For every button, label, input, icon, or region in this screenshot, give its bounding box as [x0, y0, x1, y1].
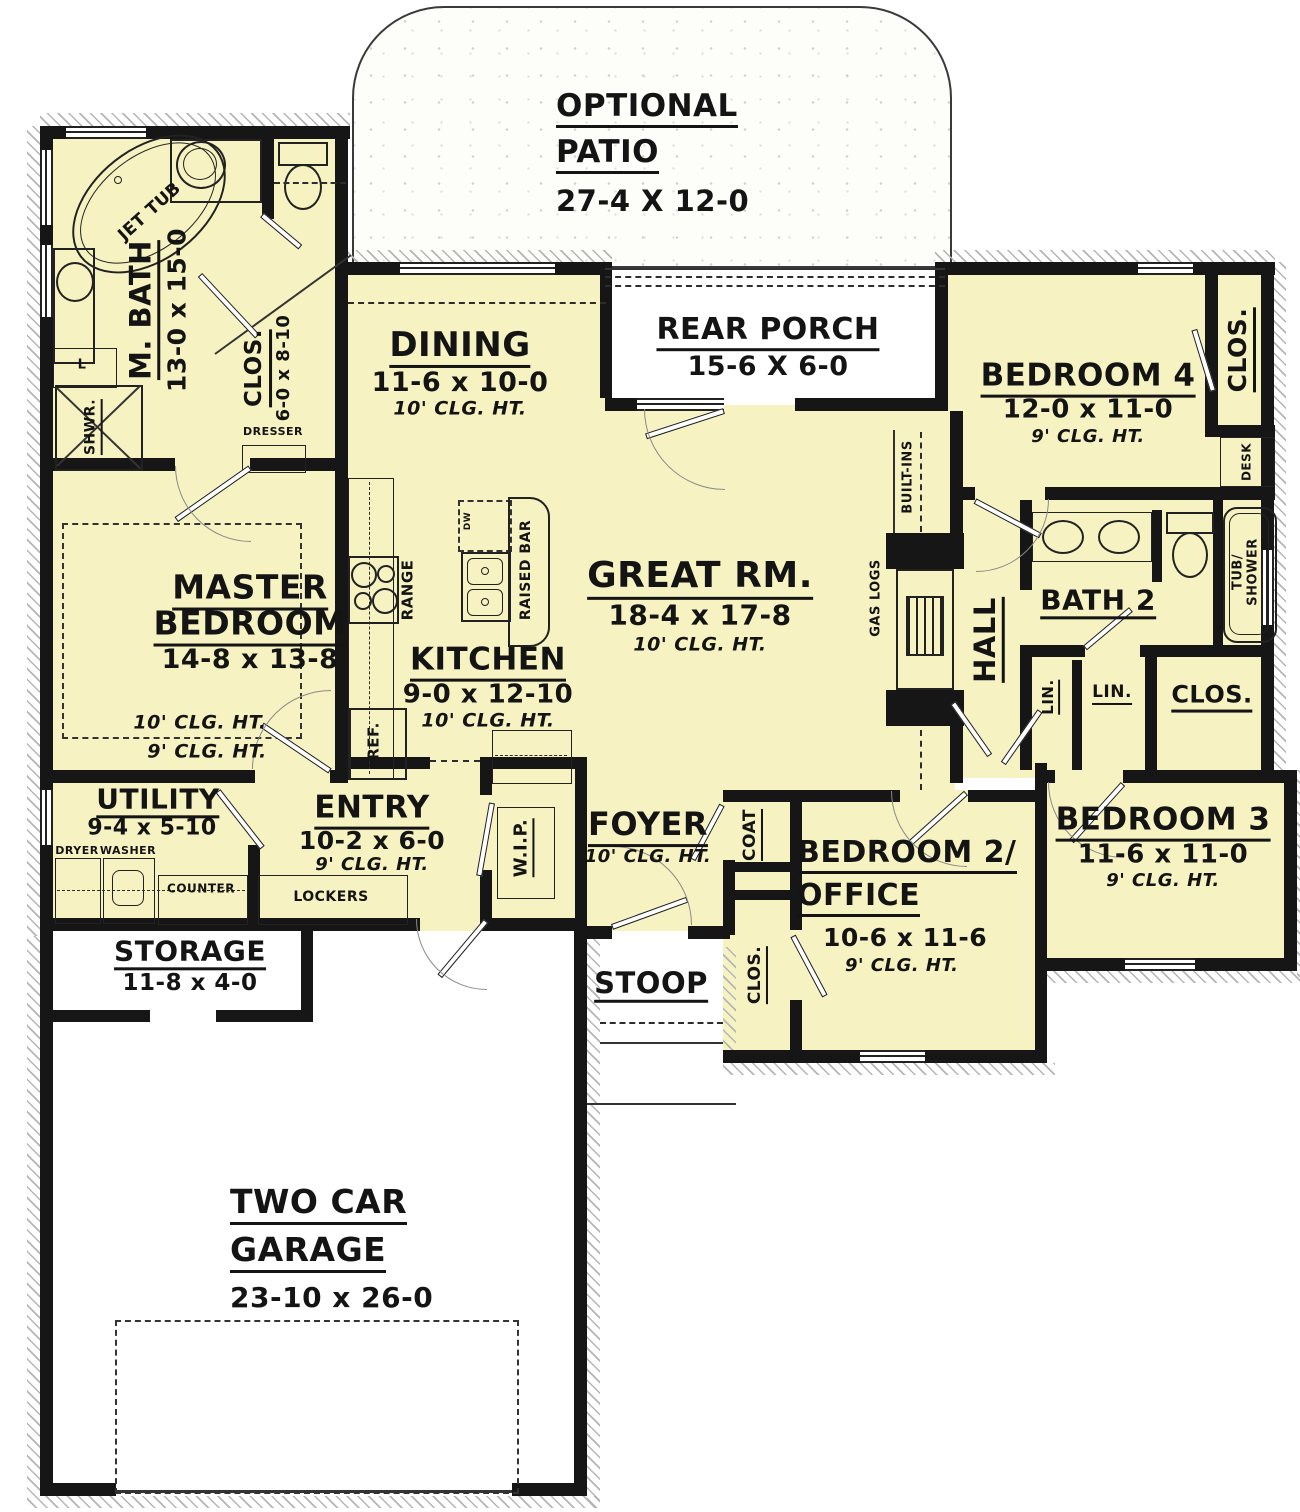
- desk-label: DESK: [1240, 443, 1253, 481]
- hatch-strip: [723, 947, 736, 1050]
- counter-dashed: [495, 755, 567, 756]
- dining-clg: 10' CLG. HT.: [393, 398, 526, 419]
- window: [400, 262, 555, 275]
- wall-segment: [605, 398, 637, 411]
- sink: [56, 262, 94, 302]
- window: [1138, 262, 1193, 275]
- window: [40, 790, 53, 845]
- bed3-clg: 9' CLG. HT.: [1106, 871, 1219, 891]
- bed4-name: BEDROOM 4: [981, 359, 1196, 398]
- builtins-dashed: [920, 432, 922, 532]
- mclos-dims: 6-0 x 8-10: [274, 315, 294, 422]
- hatch-strip: [935, 250, 1275, 262]
- wall-segment: [40, 1483, 116, 1496]
- porch-dims: 15-6 X 6-0: [688, 352, 849, 382]
- bath2-text: BATH 2: [1040, 584, 1156, 619]
- bed2-closet-label: CLOS.: [746, 946, 768, 1004]
- wall-segment: [1045, 487, 1275, 500]
- wall-segment: [950, 725, 963, 783]
- wall-segment: [40, 126, 53, 150]
- raised-bar-label: RAISED BAR: [519, 520, 535, 620]
- fireplace-top: [886, 533, 964, 569]
- wall-segment: [1035, 763, 1047, 1063]
- utility-text: UTILITY: [96, 783, 219, 818]
- great-dims: 18-4 x 17-8: [608, 599, 791, 630]
- dryer-label: DRYER: [55, 845, 98, 857]
- builtins-edge: [893, 430, 895, 533]
- gas-logs-icon: [906, 596, 944, 656]
- wall-segment: [335, 126, 348, 471]
- bed2clos-text: CLOS.: [746, 946, 768, 1004]
- dryer: [55, 858, 101, 924]
- coat-label: COAT: [741, 809, 763, 861]
- wall-segment: [795, 398, 948, 411]
- hatch-strip: [40, 113, 350, 126]
- burner: [354, 592, 372, 610]
- wall-segment: [935, 268, 948, 398]
- wall-segment: [600, 268, 612, 398]
- washer-label: WASHER: [100, 845, 156, 857]
- toilet-nook-dashed: [274, 182, 346, 184]
- entry-ceiling-break: [430, 760, 480, 762]
- shower-label: SHWR.: [84, 399, 103, 455]
- range-label: RANGE: [400, 560, 417, 621]
- stoop-label: STOOP: [594, 967, 708, 1003]
- wall-segment: [790, 1000, 802, 1062]
- foyer-clg: 10' CLG. HT.: [585, 847, 712, 867]
- bed2-label: BEDROOM 2/ OFFICE 10-6 x 11-6 9' CLG. HT…: [797, 835, 1017, 976]
- stoop-walk-edge: [587, 1103, 736, 1105]
- window: [40, 245, 53, 317]
- toilet-bowl: [284, 164, 322, 210]
- wall-segment: [574, 926, 587, 1496]
- toilet-tank: [1166, 512, 1214, 534]
- drain: [481, 598, 489, 606]
- sink: [1098, 520, 1140, 554]
- storage-name: STORAGE: [114, 935, 266, 970]
- wall-segment: [40, 770, 255, 783]
- mclos-name: CLOS.: [242, 329, 272, 407]
- bed3-name: BEDROOM 3: [1056, 803, 1271, 842]
- wall-segment: [723, 790, 735, 800]
- burner: [372, 588, 398, 614]
- tub-line1: TUB/: [1231, 538, 1246, 606]
- entry-clg: 9' CLG. HT.: [315, 855, 428, 875]
- wall-segment: [963, 487, 975, 500]
- sink-inner: [183, 148, 217, 180]
- washer-drum: [112, 870, 144, 906]
- dining-ceiling-break: [348, 302, 606, 304]
- wall-segment: [40, 317, 53, 790]
- porch-roof-dashed: [605, 285, 945, 287]
- patio-label: OPTIONAL PATIO 27-4 X 12-0: [556, 88, 749, 218]
- garage-text2: GARAGE: [230, 1230, 386, 1273]
- wall-segment: [40, 1010, 150, 1022]
- hatch-strip: [1035, 971, 1300, 983]
- master-closet-label: CLOS. 6-0 x 8-10: [242, 315, 294, 422]
- bed2-clg: 9' CLG. HT.: [845, 955, 1017, 976]
- linen1-label: LIN.: [1040, 679, 1060, 714]
- lin2-text: LIN.: [1092, 683, 1132, 705]
- wall-segment: [950, 411, 963, 535]
- wall-segment: [486, 918, 587, 931]
- patio-name: OPTIONAL: [556, 88, 738, 128]
- bed2-text2: OFFICE: [797, 878, 920, 917]
- master-clg10: 10' CLG. HT.: [133, 712, 266, 733]
- bath2-label: BATH 2: [1040, 584, 1156, 619]
- dining-name: DINING: [389, 326, 530, 368]
- wall-segment: [330, 770, 348, 783]
- bed4-clg: 9' CLG. HT.: [1031, 427, 1144, 447]
- window: [1125, 958, 1195, 971]
- wall-segment: [1072, 660, 1082, 770]
- wall-segment: [262, 139, 274, 219]
- wall-segment: [1140, 645, 1273, 657]
- wall-segment: [301, 918, 313, 1022]
- foyer-text: FOYER: [588, 807, 708, 847]
- bed3-dims: 11-6 x 11-0: [1078, 840, 1249, 869]
- stoop-area: [600, 931, 723, 1103]
- garage-text1: TWO CAR: [230, 1182, 407, 1225]
- wall-segment: [1205, 425, 1275, 437]
- drain: [481, 567, 489, 575]
- entry-dims: 10-2 x 6-0: [299, 827, 445, 855]
- wall-segment: [340, 262, 400, 275]
- bed4-text: BEDROOM 4: [981, 359, 1196, 398]
- mbath-label: M. BATH 13-0 x 15-0: [124, 228, 191, 392]
- wall-segment: [1035, 958, 1125, 971]
- hall-label: HALL: [969, 597, 1005, 683]
- wall-segment: [968, 790, 1043, 802]
- wall-segment: [40, 225, 53, 245]
- master-clg9: 9' CLG. HT.: [147, 741, 266, 762]
- dw-label: DW: [463, 512, 473, 530]
- wall-segment: [925, 1050, 1043, 1063]
- wall-segment: [1145, 655, 1157, 770]
- wall-segment: [1195, 958, 1297, 971]
- garage-dims: 23-10 x 26-0: [230, 1281, 433, 1314]
- mbath-dims: 13-0 x 15-0: [164, 228, 192, 392]
- stoop-step-line: [600, 1042, 723, 1044]
- bed2-dims: 10-6 x 11-6: [823, 923, 1017, 952]
- porch-text: REAR PORCH: [656, 313, 879, 351]
- bed4-closet-label: CLOS.: [1224, 308, 1256, 393]
- dresser-label: DRESSER: [243, 426, 303, 438]
- entry-name: ENTRY: [314, 791, 429, 830]
- hatch-strip: [27, 1496, 600, 1508]
- tub-line2: SHOWER: [1246, 538, 1261, 606]
- sink: [1042, 520, 1084, 554]
- hatch-strip: [587, 1103, 600, 1508]
- wall-segment: [1205, 275, 1218, 425]
- bed4-dims: 12-0 x 11-0: [1003, 395, 1174, 424]
- porch-roof-dashed: [605, 276, 945, 278]
- kitchen-clg: 10' CLG. HT.: [421, 710, 554, 731]
- counter-label: COUNTER: [167, 882, 235, 895]
- ceiling-break-dashed: [920, 730, 922, 790]
- wall-segment: [1284, 770, 1297, 971]
- stoop-text: STOOP: [594, 967, 708, 1003]
- dresser: [242, 445, 306, 473]
- great-text: GREAT RM.: [587, 556, 813, 600]
- hall-closet-label: CLOS.: [1171, 682, 1252, 713]
- wall-segment: [1035, 770, 1055, 783]
- lin1-text: LIN.: [1040, 679, 1060, 714]
- linen2-label: LIN.: [1092, 683, 1132, 705]
- great-clg: 10' CLG. HT.: [633, 634, 766, 655]
- linen-label: L: [78, 359, 87, 374]
- hatch-strip: [348, 250, 612, 262]
- storage-text: STORAGE: [114, 935, 266, 970]
- lockers-label: LOCKERS: [293, 890, 368, 906]
- patio-dims: 27-4 X 12-0: [556, 184, 749, 218]
- porch-roof-line: [605, 268, 945, 270]
- garage-label: TWO CAR GARAGE 23-10 x 26-0: [230, 1182, 433, 1314]
- wall-segment: [1213, 500, 1223, 645]
- wip-label: W.I.P.: [511, 819, 534, 878]
- kitchen-text: KITCHEN: [410, 643, 566, 682]
- wall-segment: [935, 262, 1138, 275]
- ref-label: REF.: [366, 722, 383, 760]
- wall-segment: [575, 757, 587, 931]
- wall-segment: [216, 1010, 313, 1022]
- kitchen-name: KITCHEN: [410, 643, 566, 682]
- window: [860, 1050, 925, 1063]
- patio-name2: PATIO: [556, 134, 659, 174]
- tub-drain: [114, 176, 122, 184]
- stoop-step-dashed: [600, 1022, 723, 1024]
- entry-text: ENTRY: [314, 791, 429, 830]
- dining-text: DINING: [389, 326, 530, 368]
- utility-name: UTILITY: [96, 783, 219, 818]
- storage-dims: 11-8 x 4-0: [123, 971, 258, 997]
- kitchen-dims: 9-0 x 12-10: [403, 680, 574, 709]
- hatch-strip: [27, 936, 40, 1508]
- foyer-name: FOYER: [588, 807, 708, 847]
- wall-segment: [1123, 770, 1297, 783]
- mbath-name: M. BATH: [124, 240, 160, 380]
- hallclos-text: CLOS.: [1171, 682, 1252, 713]
- great-name: GREAT RM.: [587, 556, 813, 600]
- tub-shower-label: TUB/ SHOWER: [1231, 538, 1260, 606]
- master-dims: 14-8 x 13-8: [162, 645, 339, 675]
- wall-segment: [1152, 510, 1162, 582]
- floor-plan: OPTIONAL PATIO 27-4 X 12-0 M. BATH 13-0 …: [0, 0, 1300, 1512]
- toilet-tank: [278, 142, 328, 166]
- wall-segment: [1020, 655, 1032, 770]
- shwr-text: SHWR.: [84, 399, 103, 455]
- wip-text: W.I.P.: [511, 819, 534, 878]
- bed3-text: BEDROOM 3: [1056, 803, 1271, 842]
- window: [66, 126, 146, 139]
- hall-text: HALL: [969, 597, 1005, 683]
- toilet-bowl: [1172, 532, 1208, 578]
- burner: [377, 565, 395, 583]
- bed2-text1: BEDROOM 2/: [797, 835, 1017, 874]
- master-name2: BEDROOM: [154, 606, 347, 647]
- wall-segment: [587, 926, 612, 939]
- bed4clos-text: CLOS.: [1224, 308, 1256, 393]
- coat-text: COAT: [741, 809, 763, 861]
- dining-dims: 11-6 x 10-0: [372, 368, 549, 398]
- kitchen-counter-bottom: [492, 730, 572, 784]
- builtins-label: BUILT-INS: [902, 440, 917, 513]
- porch-name: REAR PORCH: [656, 313, 879, 351]
- garage-door-outline: [115, 1320, 519, 1494]
- window: [40, 150, 53, 225]
- gas-logs-label: GAS LOGS: [870, 559, 885, 637]
- utility-dims: 9-4 x 5-10: [87, 817, 216, 842]
- wall-segment: [723, 790, 900, 802]
- burner: [351, 562, 377, 588]
- hatch-strip: [723, 1063, 1055, 1075]
- hatch-strip: [587, 935, 600, 1103]
- wall-segment: [1193, 262, 1275, 275]
- master-text2: BEDROOM: [154, 606, 347, 647]
- hatch-strip: [27, 126, 40, 936]
